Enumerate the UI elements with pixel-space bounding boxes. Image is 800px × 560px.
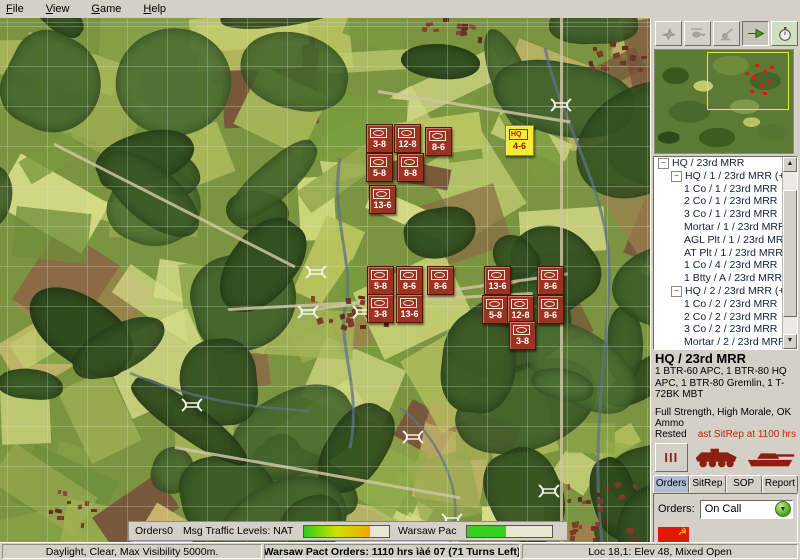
tree-expander-icon[interactable]: − bbox=[671, 286, 682, 297]
scroll-up-icon[interactable]: ▲ bbox=[783, 157, 797, 172]
tree-item[interactable]: 1 Co / 4 / 23rd MRR bbox=[654, 259, 797, 272]
helicopter-icon bbox=[689, 26, 706, 41]
msg-traffic-label: Msg Traffic Levels: NAT bbox=[183, 525, 293, 537]
unit-symbol bbox=[488, 270, 505, 280]
apc-silhouette-icon bbox=[692, 446, 740, 470]
unit-symbol bbox=[371, 270, 388, 280]
message-traffic-strip: Orders0 Msg Traffic Levels: NAT Warsaw P… bbox=[128, 521, 568, 541]
tree-expander-icon[interactable]: − bbox=[671, 171, 682, 182]
minimap-unit-dot bbox=[759, 84, 763, 87]
hq-unit-counter[interactable]: 4-6 bbox=[505, 125, 534, 156]
unit-counter[interactable]: 3-8 bbox=[367, 294, 394, 323]
tank-silhouette-icon bbox=[744, 446, 796, 470]
unit-counter[interactable]: 13-6 bbox=[369, 185, 396, 214]
warsaw-traffic-bar bbox=[466, 525, 553, 538]
unit-composition: 1 BTR-60 APC, 1 BTR-80 HQ APC, 1 BTR-80 … bbox=[655, 366, 796, 401]
minimap-unit-dot bbox=[752, 76, 756, 79]
unit-counter[interactable]: 8-6 bbox=[396, 266, 423, 295]
right-sidebar: −HQ / 23rd MRR−HQ / 1 / 23rd MRR (+)1 Co… bbox=[650, 18, 800, 542]
unit-symbol bbox=[400, 298, 417, 308]
status-bar: Daylight, Clear, Max Visibility 5000m. W… bbox=[0, 542, 800, 560]
unit-symbol bbox=[509, 129, 528, 140]
jet-icon bbox=[660, 26, 677, 41]
unit-symbol bbox=[398, 128, 415, 138]
game-window: FileViewGameHelp 3-812-88-64-65-88-813-6… bbox=[0, 0, 800, 560]
unit-counter[interactable]: 8-6 bbox=[537, 295, 564, 324]
menu-bar: FileViewGameHelp bbox=[0, 0, 800, 19]
tree-item[interactable]: Mortar / 2 / 23rd MRR bbox=[654, 336, 797, 349]
cursor-location-status: Loc 18,1: Elev 48, Mixed Open bbox=[522, 544, 798, 559]
tree-item[interactable]: Mortar / 1 / 23rd MRR bbox=[654, 221, 797, 234]
unit-counter[interactable]: 3-8 bbox=[509, 321, 536, 350]
unit-symbol bbox=[511, 299, 528, 309]
orders-label: Orders: bbox=[658, 503, 695, 515]
turn-status: Warsaw Pact Orders: 1110 hrs ìàé 07 (71 … bbox=[264, 544, 520, 559]
tree-item[interactable]: 3 Co / 2 / 23rd MRR bbox=[654, 323, 797, 336]
tree-scrollbar[interactable]: ▲ ▼ bbox=[782, 157, 797, 349]
unit-counter[interactable]: 13-6 bbox=[484, 266, 511, 295]
tree-item[interactable]: AGL Plt / 1 / 23rd MRR bbox=[654, 234, 797, 247]
nato-traffic-bar bbox=[303, 525, 390, 538]
orders-value: On Call bbox=[705, 503, 742, 515]
unit-counter[interactable]: 8-8 bbox=[397, 153, 424, 182]
minimap[interactable] bbox=[654, 49, 794, 154]
menu-help[interactable]: Help bbox=[143, 3, 166, 15]
unit-counter[interactable]: 5-8 bbox=[482, 295, 509, 324]
unit-layer: 3-812-88-64-65-88-813-65-88-68-613-68-63… bbox=[0, 18, 650, 542]
unit-counter[interactable]: 5-8 bbox=[366, 153, 393, 182]
menu-view[interactable]: View bbox=[46, 3, 70, 15]
unit-symbol bbox=[371, 298, 388, 308]
helicopter-mission-button[interactable] bbox=[684, 21, 711, 46]
tree-expander-icon[interactable]: − bbox=[658, 158, 669, 169]
tab-sop[interactable]: SOP bbox=[726, 475, 762, 493]
artillery-icon bbox=[718, 26, 735, 41]
weather-status: Daylight, Clear, Max Visibility 5000m. bbox=[2, 544, 262, 559]
minimap-unit-dot bbox=[767, 80, 771, 83]
unit-counter[interactable]: 8-6 bbox=[537, 266, 564, 295]
artillery-mission-button[interactable] bbox=[713, 21, 740, 46]
unit-counter[interactable]: 12-8 bbox=[394, 124, 421, 153]
unit-counter[interactable]: 8-6 bbox=[427, 266, 454, 295]
tree-item[interactable]: 1 Co / 2 / 23rd MRR bbox=[654, 298, 797, 311]
orders-count-label: Orders0 bbox=[135, 525, 173, 537]
unit-status-line: Full Strength, High Morale, OK Ammo bbox=[655, 407, 796, 429]
tab-report[interactable]: Report bbox=[762, 475, 798, 493]
unit-symbol bbox=[541, 299, 558, 309]
map-viewport[interactable]: 3-812-88-64-65-88-813-65-88-68-613-68-63… bbox=[0, 18, 650, 542]
unit-counter[interactable]: 12-8 bbox=[507, 295, 534, 324]
unit-symbol bbox=[373, 189, 390, 199]
unit-symbol bbox=[513, 325, 530, 335]
unit-fatigue-label: Rested bbox=[655, 429, 687, 440]
unit-symbol bbox=[429, 131, 446, 141]
dropdown-arrow-icon[interactable]: ▼ bbox=[775, 501, 791, 517]
tab-sitrep[interactable]: SitRep bbox=[689, 475, 725, 493]
scrollbar-thumb[interactable] bbox=[783, 190, 797, 317]
sitrep-time-label: ast SitRep at 1100 hrs bbox=[698, 429, 796, 440]
unit-info-panel: HQ / 23rd MRR 1 BTR-60 APC, 1 BTR-80 HQ … bbox=[653, 350, 798, 473]
tab-orders[interactable]: Orders bbox=[653, 475, 689, 493]
minimap-unit-dot bbox=[755, 64, 759, 67]
green-arrow-icon bbox=[747, 26, 765, 41]
unit-counter[interactable]: 3-8 bbox=[366, 124, 393, 153]
counter-style-button[interactable]: III bbox=[655, 443, 688, 472]
tree-item[interactable]: 1 Btty / A / 23rd MRR bbox=[654, 272, 797, 285]
tree-item[interactable]: AT Plt / 1 / 23rd MRR bbox=[654, 247, 797, 260]
unit-symbol bbox=[400, 270, 417, 280]
tree-item[interactable]: 2 Co / 2 / 23rd MRR bbox=[654, 311, 797, 324]
scroll-down-icon[interactable]: ▼ bbox=[783, 334, 797, 349]
tree-item[interactable]: −HQ / 23rd MRR bbox=[654, 157, 797, 170]
menu-game[interactable]: Game bbox=[91, 3, 121, 15]
menu-file[interactable]: File bbox=[6, 3, 24, 15]
info-tabs: OrdersSitRepSOPReport bbox=[653, 475, 798, 493]
tree-item[interactable]: 2 Co / 1 / 23rd MRR bbox=[654, 195, 797, 208]
time-button[interactable] bbox=[771, 21, 798, 46]
tree-item[interactable]: −HQ / 1 / 23rd MRR (+) bbox=[654, 170, 797, 183]
minimap-unit-dot bbox=[750, 90, 754, 93]
unit-title: HQ / 23rd MRR bbox=[655, 352, 796, 366]
stopwatch-icon bbox=[777, 26, 793, 42]
sidebar-toolbar bbox=[653, 19, 798, 48]
unit-counter[interactable]: 5-8 bbox=[367, 266, 394, 295]
unit-symbol bbox=[370, 157, 387, 167]
unit-symbol bbox=[541, 270, 558, 280]
orders-dropdown[interactable]: On Call ▼ bbox=[700, 500, 793, 519]
minimap-unit-dot bbox=[770, 66, 774, 69]
tree-item[interactable]: AGL Plt / 2 / 23rd MRR bbox=[654, 349, 797, 350]
tree-item[interactable]: 3 Co / 1 / 23rd MRR bbox=[654, 208, 797, 221]
unit-tree: −HQ / 23rd MRR−HQ / 1 / 23rd MRR (+)1 Co… bbox=[653, 156, 798, 350]
unit-symbol bbox=[401, 157, 418, 167]
unit-symbol bbox=[431, 270, 448, 280]
air-mission-button[interactable] bbox=[655, 21, 682, 46]
minimap-unit-dot bbox=[763, 92, 767, 95]
minimap-viewport-rect bbox=[707, 52, 789, 110]
unit-icon-row: III bbox=[655, 443, 796, 473]
main-area: 3-812-88-64-65-88-813-65-88-68-613-68-63… bbox=[0, 18, 800, 542]
unit-symbol bbox=[370, 128, 387, 138]
warsaw-traffic-label: Warsaw Pac bbox=[398, 525, 457, 537]
next-turn-button[interactable] bbox=[742, 21, 769, 46]
unit-symbol bbox=[486, 299, 503, 309]
unit-counter[interactable]: 8-6 bbox=[425, 127, 452, 156]
minimap-unit-dot bbox=[745, 72, 749, 75]
tree-item[interactable]: −HQ / 2 / 23rd MRR (+) bbox=[654, 285, 797, 298]
minimap-unit-dot bbox=[763, 70, 767, 73]
unit-counter[interactable]: 13-6 bbox=[396, 294, 423, 323]
tree-item[interactable]: 1 Co / 1 / 23rd MRR bbox=[654, 183, 797, 196]
